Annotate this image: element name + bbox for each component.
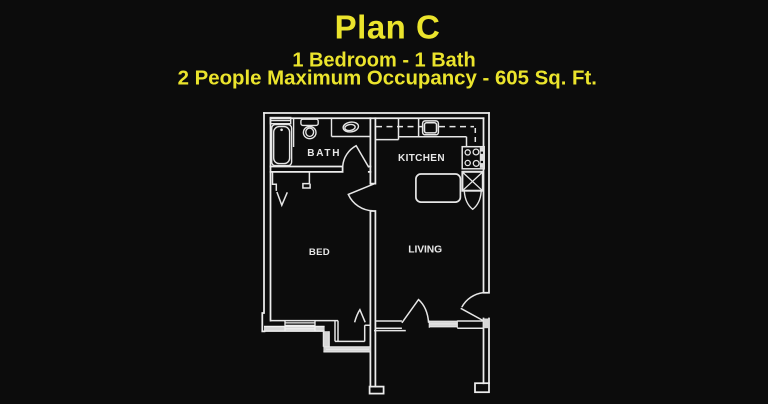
svg-text:2 People Maximum Occupancy - 6: 2 People Maximum Occupancy - 605 Sq. Ft. bbox=[178, 68, 597, 90]
svg-text:KITCHEN: KITCHEN bbox=[398, 153, 445, 164]
svg-text:BED: BED bbox=[309, 247, 330, 258]
svg-text:BATH: BATH bbox=[307, 148, 341, 159]
svg-text:Plan C: Plan C bbox=[335, 8, 441, 45]
svg-text:LIVING: LIVING bbox=[408, 244, 442, 255]
